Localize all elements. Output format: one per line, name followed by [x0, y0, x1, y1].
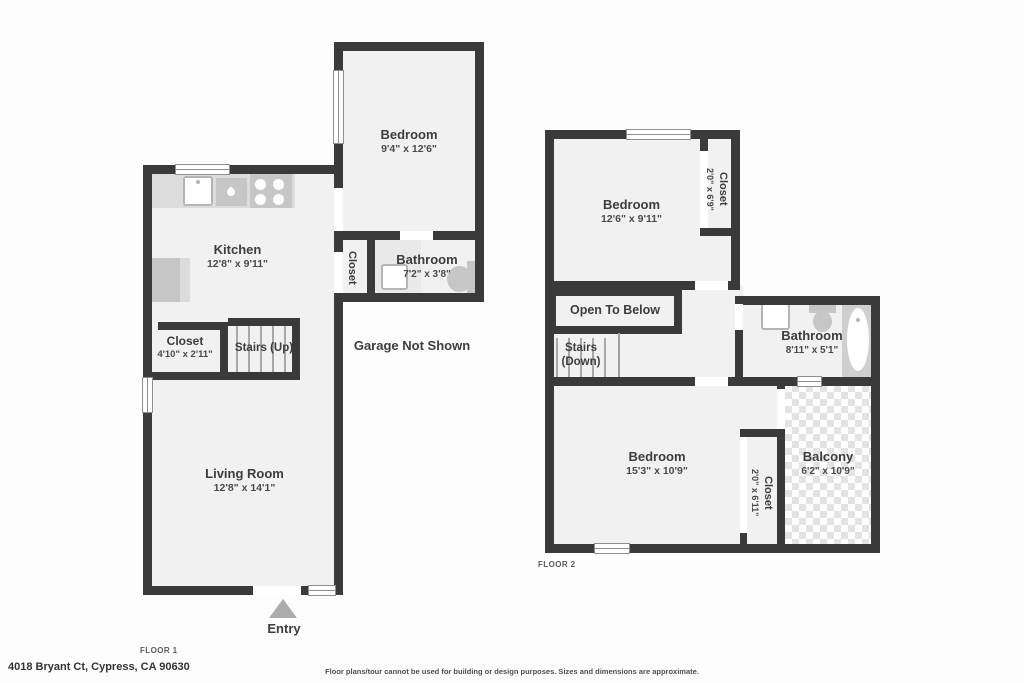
entry-door-opening: [253, 586, 301, 595]
garage-note: Garage Not Shown: [342, 338, 482, 354]
wall: [740, 533, 747, 544]
room-label-balcony: Balcony 6'2" x 10'9": [786, 449, 870, 478]
room-label-stairs-up: Stairs (Up): [228, 341, 300, 355]
entry-label: Entry: [255, 621, 313, 637]
room-name: Closet: [146, 334, 224, 349]
window: [308, 585, 336, 596]
label-text: Entry: [255, 621, 313, 637]
door-opening: [400, 231, 433, 240]
label-text: Open To Below: [570, 303, 660, 319]
burner-icon: [273, 179, 284, 190]
room-dims: 8'11" x 5'1": [752, 344, 872, 357]
room-name: Bedroom: [343, 127, 475, 143]
wall: [545, 377, 554, 553]
room-name: Bedroom: [559, 197, 704, 213]
room-name: Bathroom: [752, 328, 872, 344]
room-dims: 12'6" x 9'11": [559, 213, 704, 227]
burner-icon: [255, 194, 266, 205]
room-label-bedroom1: Bedroom 9'4" x 12'6": [343, 127, 475, 157]
window: [797, 376, 822, 387]
room-label-closet2-top-dims: 2'0" x 6'9": [705, 146, 715, 232]
door-opening: [695, 377, 728, 386]
room-name: Stairs (Up): [228, 341, 300, 355]
stair-divider: [618, 333, 620, 381]
room-name: Balcony: [786, 449, 870, 465]
window: [175, 164, 230, 175]
kitchen-faucet-icon: [196, 180, 200, 184]
room-dims: 9'4" x 12'6": [343, 143, 475, 157]
wall: [740, 429, 785, 437]
open-to-below-box: Open To Below: [548, 288, 682, 334]
room-label-closet2-bottom-dims: 2'0" x 6'11": [750, 448, 760, 538]
wall: [743, 296, 880, 305]
floor2-label: FLOOR 2: [538, 560, 575, 569]
room-label-bathroom2: Bathroom 8'11" x 5'1": [752, 328, 872, 357]
window: [626, 129, 691, 140]
room-label-living-room: Living Room 12'8" x 14'1": [162, 466, 327, 496]
room-dims: 7'2" x 3'8": [372, 268, 482, 281]
wall: [731, 130, 740, 290]
room-label-closet2-bottom-name: Closet: [762, 448, 774, 538]
room-name: (Down): [548, 355, 614, 369]
room-name: Kitchen: [160, 242, 315, 258]
room-label-kitchen: Kitchen 12'8" x 9'11": [160, 242, 315, 272]
room-label-bathroom1: Bathroom 7'2" x 3'8": [372, 252, 482, 281]
room-label-stairs-down: Stairs (Down): [548, 341, 614, 370]
room-name: Bathroom: [372, 252, 482, 268]
floor1-label: FLOOR 1: [140, 646, 177, 655]
room-dims: 6'2" x 10'9": [786, 465, 870, 478]
room-label-bedroom2-bottom: Bedroom 15'3" x 10'9": [577, 449, 737, 479]
room-dims: 4'10" x 2'11": [146, 349, 224, 361]
door-opening: [334, 188, 343, 231]
bathroom2-sink-icon: [761, 303, 790, 330]
entry-arrow-icon: [269, 599, 297, 618]
room-dims: 12'8" x 14'1": [162, 482, 327, 496]
window: [142, 377, 153, 413]
wall: [228, 318, 300, 326]
floorplan-canvas: Bedroom 9'4" x 12'6" Kitchen 12'8" x 9'1…: [0, 0, 1024, 683]
window: [594, 543, 630, 554]
stove-icon: [250, 174, 292, 208]
burner-icon: [273, 194, 284, 205]
room-dims: 15'3" x 10'9": [577, 465, 737, 479]
burner-icon: [255, 179, 266, 190]
closet-door-opening: [740, 437, 747, 536]
wall: [143, 372, 300, 380]
room-dims: 12'8" x 9'11": [160, 258, 315, 272]
room-name: Living Room: [162, 466, 327, 482]
floor1-main-floor: [148, 170, 338, 590]
room-label-closet1: Closet 4'10" x 2'11": [146, 334, 224, 361]
room-label-hall-closet: Closet: [346, 240, 358, 296]
balcony-door-opening: [777, 389, 785, 429]
door-opening: [695, 281, 728, 290]
door-opening: [735, 304, 743, 330]
room-name: Bedroom: [577, 449, 737, 465]
disclaimer: Floor plans/tour cannot be used for buil…: [262, 667, 762, 676]
wall: [871, 296, 880, 553]
room-label-closet2-top-name: Closet: [717, 146, 729, 232]
bathtub-drain-icon: [856, 318, 860, 322]
wall: [143, 165, 334, 174]
door-opening: [334, 252, 343, 293]
wall: [334, 42, 484, 51]
room-label-bedroom2-top: Bedroom 12'6" x 9'11": [559, 197, 704, 227]
room-name: Stairs: [548, 341, 614, 355]
wall: [158, 322, 228, 330]
note-text: Garage Not Shown: [342, 338, 482, 354]
